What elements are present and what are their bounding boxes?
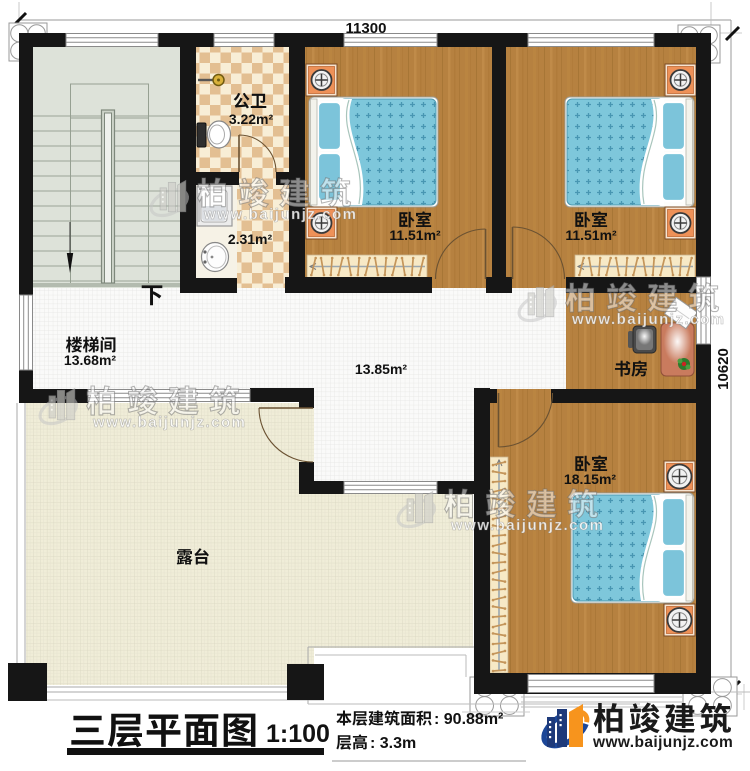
svg-text:www.baijunjz.com: www.baijunjz.com [592,734,733,751]
svg-text:www.baijunjz.com: www.baijunjz.com [571,311,725,328]
svg-text:www.baijunjz.com: www.baijunjz.com [450,517,604,534]
svg-text:18.15m²: 18.15m² [564,471,616,487]
svg-text:2.31m²: 2.31m² [228,231,273,247]
svg-text:: 3.3m: : 3.3m [370,735,416,752]
svg-text:www.baijunjz.com: www.baijunjz.com [92,414,246,431]
svg-text:: 90.88m²: : 90.88m² [434,711,503,728]
svg-text:13.85m²: 13.85m² [355,361,407,377]
svg-text:11.51m²: 11.51m² [389,227,441,243]
svg-text:www.baijunjz.com: www.baijunjz.com [203,206,357,223]
svg-text:11.51m²: 11.51m² [565,227,617,243]
svg-text:13.68m²: 13.68m² [64,352,116,368]
svg-text:3.22m²: 3.22m² [229,111,274,127]
svg-text:10620: 10620 [715,348,732,390]
svg-text:1:100: 1:100 [266,720,330,748]
